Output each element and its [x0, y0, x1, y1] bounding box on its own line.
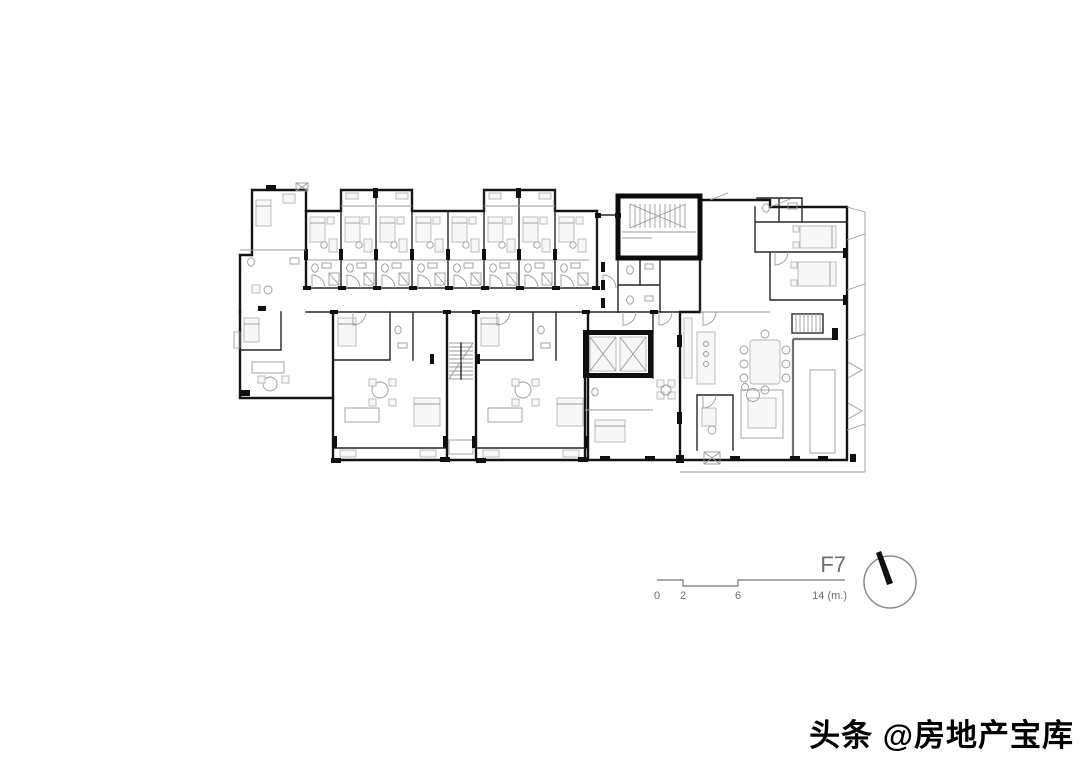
bottom-unit-b [481, 318, 583, 457]
bottom-unit-a [338, 318, 440, 457]
bottom-left-unit [244, 318, 289, 391]
floor-label: F7 [820, 552, 846, 577]
floor-plan-figure: 0 2 6 14 (m.) F7 头条 @房地产宝库 [0, 0, 1080, 763]
lobby-unit [585, 380, 675, 442]
watermark-text: 头条 @房地产宝库 [809, 710, 1074, 755]
right-wing-unit [684, 203, 836, 438]
central-stairs [449, 343, 473, 454]
scale-tick-6: 6 [735, 590, 741, 602]
north-arrow-icon [864, 551, 916, 608]
stairwell [618, 196, 700, 258]
balcony-door-marker [704, 452, 720, 464]
scale-tick-0: 0 [654, 590, 660, 602]
scale-tick-14: 14 (m.) [812, 590, 847, 602]
scale-tick-2: 2 [680, 590, 686, 602]
scale-bar: 0 2 6 14 (m.) [654, 580, 847, 602]
elevator-core [583, 330, 653, 378]
doors [312, 252, 788, 408]
floor-plan-drawing: 0 2 6 14 (m.) F7 [0, 0, 1080, 763]
